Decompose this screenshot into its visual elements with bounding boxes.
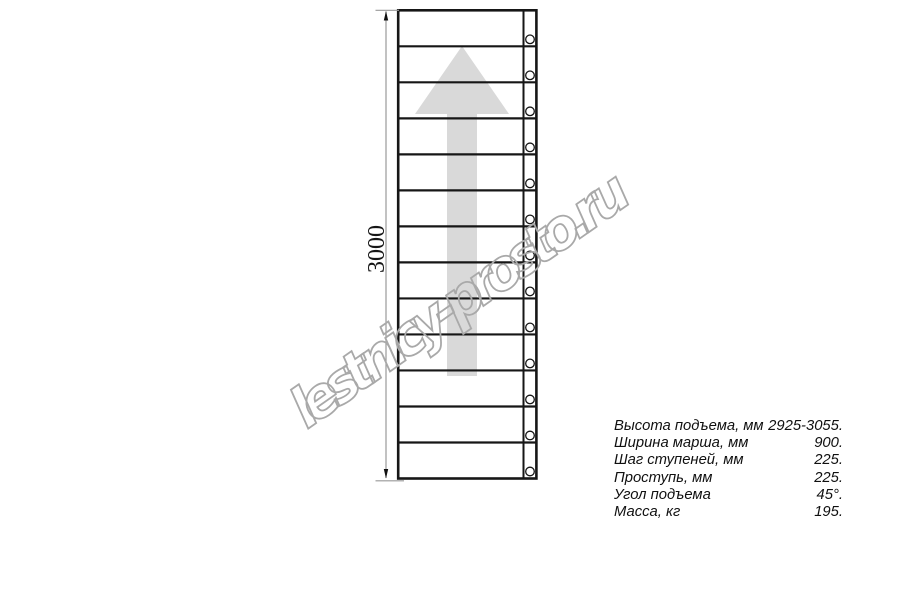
- bolt-circle-icon: [526, 467, 535, 476]
- dimension-label: 3000: [364, 225, 390, 273]
- spec-value: 45°.: [817, 487, 844, 504]
- bolt-circle-icon: [526, 35, 535, 44]
- spec-row: Угол подъема 45°.: [614, 487, 843, 504]
- spec-label: Высота подъема, мм: [614, 418, 764, 435]
- spec-table: Высота подъема, мм 2925-3055. Ширина мар…: [614, 418, 843, 521]
- spec-row: Масса, кг 195.: [614, 504, 843, 521]
- bolt-circle-icon: [526, 395, 535, 404]
- spec-row: Ширина марша, мм 900.: [614, 435, 843, 452]
- spec-label: Ширина марша, мм: [614, 435, 748, 452]
- spec-label: Проступь, мм: [614, 470, 712, 487]
- spec-row: Проступь, мм 225.: [614, 470, 843, 487]
- bolt-circle-icon: [526, 107, 535, 116]
- spec-value: 195.: [814, 504, 843, 521]
- spec-value: 2925-3055.: [768, 418, 843, 435]
- spec-row: Высота подъема, мм 2925-3055.: [614, 418, 843, 435]
- bolt-circle-icon: [526, 323, 535, 332]
- drawing-canvas: 3000 lestnicy-prosto.ru Высота подъема, …: [0, 0, 900, 600]
- bolt-circle-icon: [526, 359, 535, 368]
- bolt-circle-icon: [526, 143, 535, 152]
- spec-value: 225.: [814, 452, 843, 469]
- spec-label: Шаг ступеней, мм: [614, 452, 744, 469]
- bolt-circle-icon: [526, 431, 535, 440]
- spec-value: 900.: [814, 435, 843, 452]
- dimension-arrow-down-icon: [384, 469, 388, 479]
- bolt-circle-icon: [526, 71, 535, 80]
- bolt-circle-icon: [526, 179, 535, 188]
- dimension-arrow-up-icon: [384, 11, 388, 21]
- spec-label: Угол подъема: [614, 487, 711, 504]
- spec-value: 225.: [814, 470, 843, 487]
- spec-label: Масса, кг: [614, 504, 680, 521]
- spec-row: Шаг ступеней, мм 225.: [614, 452, 843, 469]
